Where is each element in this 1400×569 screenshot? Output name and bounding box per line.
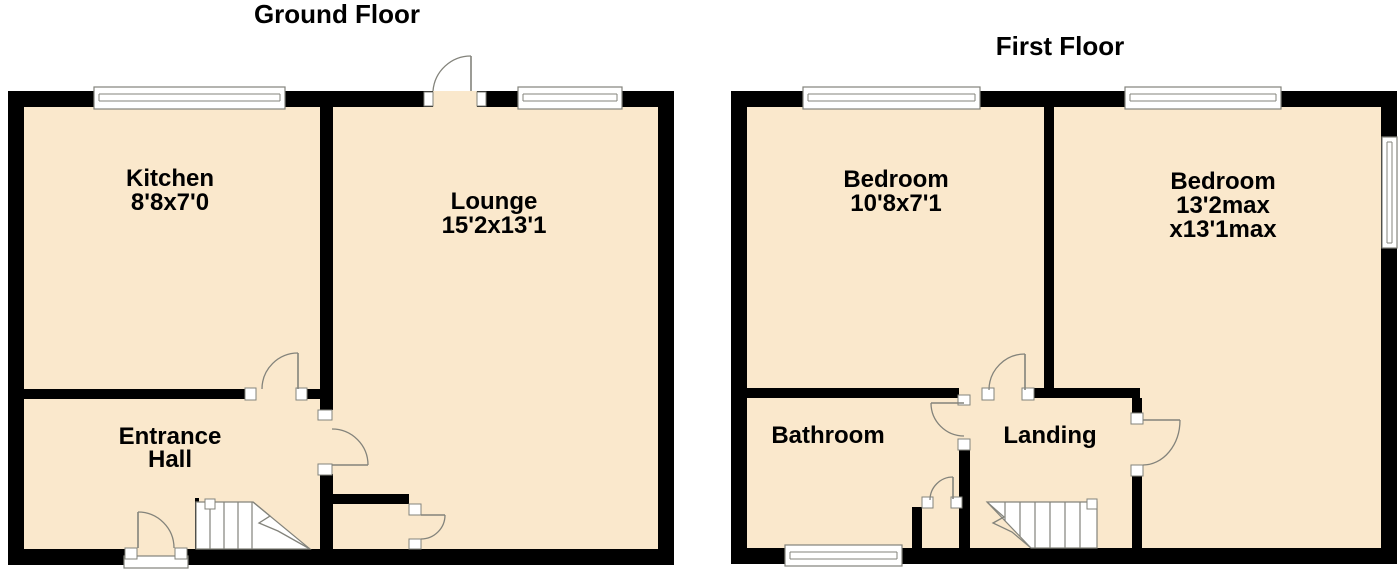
- ff-wall-bathroom-north: [747, 388, 959, 398]
- ff-landing-label: Landing: [1003, 422, 1096, 449]
- gf-lounge-label: Lounge: [451, 188, 538, 215]
- gf-back-door-jamb-left: [424, 92, 433, 106]
- ff-bedroom-right-dims-line1: 13'2max: [1176, 192, 1270, 219]
- first-floor-title: First Floor: [996, 31, 1125, 61]
- ff-bedroom-left-label: Bedroom: [843, 166, 948, 193]
- gf-kitchen-door-jamb-right: [296, 388, 307, 400]
- ff-wall-landing-east: [1132, 476, 1142, 548]
- ground-floor-title: Ground Floor: [254, 0, 420, 29]
- gf-back-door-opening: [433, 91, 477, 107]
- ff-bathroom-door-jamb-bottom: [958, 439, 970, 450]
- gf-stairs-newel-post: [205, 499, 215, 509]
- gf-lounge-window: [518, 87, 622, 109]
- gf-kitchen-window: [94, 87, 285, 109]
- ff-wall-landing-north: [1034, 388, 1140, 398]
- ground-floor-plan: Ground Floor: [8, 0, 674, 568]
- ff-bedroom-right-side-window: [1382, 137, 1397, 248]
- ff-bedroom-left-door-jamb-right: [1022, 388, 1034, 400]
- gf-understairs-door-jamb-top: [409, 504, 421, 515]
- ff-bedroom-left-dims: 10'8x7'1: [850, 190, 942, 217]
- ff-wall-bedroom-divider: [1044, 107, 1054, 398]
- gf-wall-kitchen-lounge-lower: [320, 474, 333, 549]
- ground-floor-area: [24, 107, 658, 549]
- gf-lounge-door-jamb-bottom: [318, 464, 332, 475]
- ff-bathroom-label: Bathroom: [771, 422, 884, 449]
- floorplan-canvas: Ground Floor: [0, 0, 1400, 569]
- ff-bedroom-right-window: [1125, 87, 1281, 109]
- ff-bedroom-right-dims-line2: x13'1max: [1169, 216, 1277, 243]
- gf-understairs-door-jamb-bottom: [409, 539, 421, 549]
- gf-lounge-door-jamb-top: [318, 410, 332, 420]
- gf-wall-right: [658, 91, 674, 565]
- ff-bedroom-right-window-frame: [1125, 87, 1281, 109]
- ff-bathroom-window-frame: [785, 545, 902, 566]
- ff-wall-cupboard-stub: [912, 507, 922, 548]
- first-floor-plan: First Floor: [731, 31, 1397, 566]
- ff-bedroom-left-window-frame: [803, 87, 980, 109]
- gf-hall-label-line2: Hall: [148, 446, 192, 473]
- ff-bedroom-right-door-jamb-top: [1131, 413, 1143, 424]
- gf-kitchen-door-jamb-left: [245, 388, 256, 400]
- ff-bedroom-right-side-window-frame: [1382, 137, 1397, 248]
- gf-lounge-window-frame: [518, 87, 622, 109]
- gf-wall-kitchen-hall: [24, 389, 245, 399]
- gf-wall-kitchen-lounge-upper: [320, 107, 333, 410]
- gf-back-door-jamb-right: [477, 92, 486, 106]
- ff-stairs-newel-post: [1087, 499, 1097, 509]
- gf-wall-bottom: [8, 549, 674, 565]
- ff-bedroom-left-window: [803, 87, 980, 109]
- ff-cupboard-door-jamb-left: [922, 497, 933, 508]
- gf-lounge-dims: 15'2x13'1: [442, 212, 547, 239]
- ff-bedroom-right-door-jamb-bottom: [1131, 465, 1143, 476]
- gf-front-door-jamb-right: [175, 548, 187, 559]
- gf-wall-kitchen-hall-stub: [307, 389, 320, 399]
- gf-front-door-jamb-left: [125, 548, 137, 559]
- gf-wall-left: [8, 91, 24, 565]
- gf-kitchen-dims: 8'8x7'0: [131, 189, 209, 216]
- first-floor-area: [747, 107, 1381, 548]
- gf-back-door-swing-arc: [433, 56, 471, 91]
- gf-wall-understairs-cupboard: [332, 494, 409, 504]
- ff-wall-left: [731, 91, 747, 564]
- gf-back-door: [424, 56, 486, 107]
- ff-bedroom-right-label: Bedroom: [1170, 168, 1275, 195]
- gf-kitchen-label: Kitchen: [126, 165, 214, 192]
- ff-wall-landing-east-stub: [1132, 398, 1142, 413]
- ff-bedroom-left-door-jamb-left: [982, 388, 994, 400]
- ff-bathroom-window: [785, 545, 902, 566]
- gf-kitchen-window-frame: [94, 87, 285, 109]
